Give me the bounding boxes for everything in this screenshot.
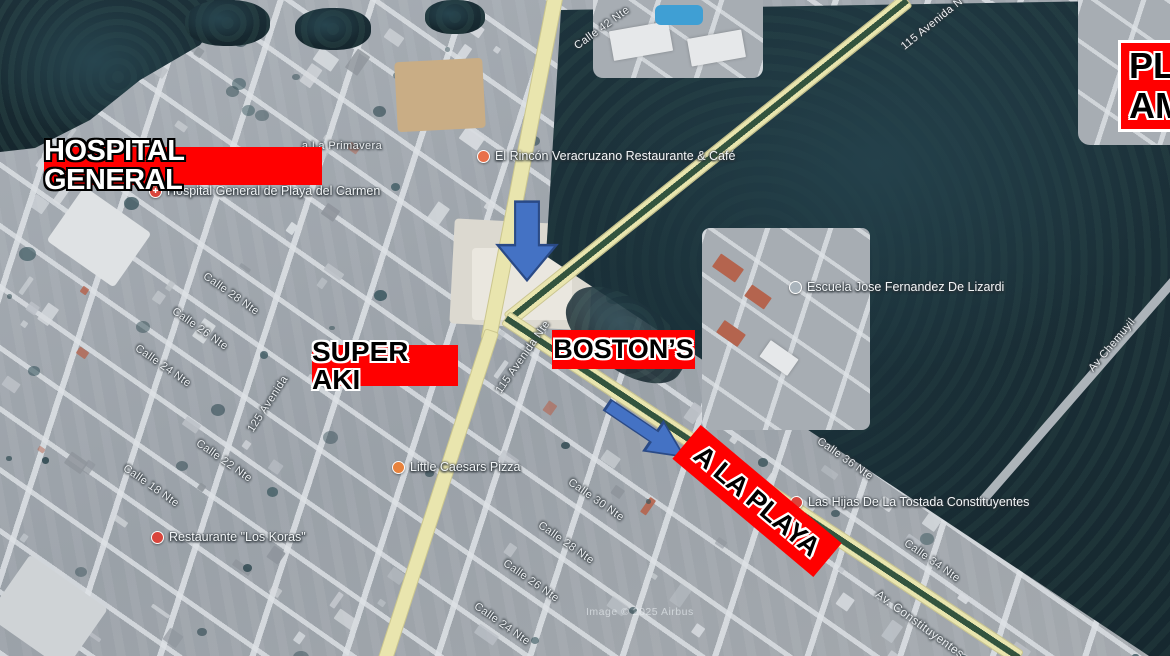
street-label: Calle 26 Nte xyxy=(170,305,230,352)
banner-plaza: PLA AM xyxy=(1118,40,1170,132)
street-label: Calle 24 Nte xyxy=(133,342,193,389)
banner-plaza-line1: PLA xyxy=(1129,48,1170,84)
street-label: 115 Avenida Nte xyxy=(494,318,553,395)
map-labels: 115 Avenida Nte115 Avenida NCalle 42 Nte… xyxy=(0,0,1170,656)
restaurant-icon xyxy=(477,150,490,163)
poi-label: El Rincón Veracruzano Restaurante & Café xyxy=(477,149,735,163)
street-label: Calle 22 Nte xyxy=(194,437,254,484)
street-label: 115 Avenida N xyxy=(899,0,965,52)
street-label: Calle 28 Nte xyxy=(201,270,261,317)
street-label: Calle 30 Nte xyxy=(566,476,626,523)
street-label: Calle 34 Nte xyxy=(902,537,962,584)
poi-text: El Rincón Veracruzano Restaurante & Café xyxy=(495,149,735,163)
poi-text: Restaurante "Los Koras" xyxy=(169,530,306,544)
poi-text: Las Hijas De La Tostada Constituyentes xyxy=(808,495,1029,509)
street-label: Av. Constituyentes xyxy=(873,587,967,656)
street-label: 125 Avenida xyxy=(245,374,290,435)
poi-label: Las Hijas De La Tostada Constituyentes xyxy=(790,495,1029,509)
banner-super-aki: SUPER AKI xyxy=(312,345,458,386)
street-label: Calle 42 Nte xyxy=(572,4,632,52)
restaurant-icon xyxy=(392,461,405,474)
street-label: Av Chemuyil xyxy=(1086,316,1138,374)
street-label: Calle 36 Nte xyxy=(815,435,875,482)
imagery-watermark: Image © 2025 Airbus xyxy=(586,606,694,618)
street-label: Calle 24 Nte xyxy=(472,600,532,647)
street-label: Calle 26 Nte xyxy=(501,557,561,604)
banner-hospital-general: HOSPITAL GENERAL xyxy=(44,147,322,185)
street-label: Calle 18 Nte xyxy=(121,462,181,509)
school-icon xyxy=(789,281,802,294)
banner-bostons: BOSTON’S xyxy=(552,330,695,369)
poi-text: Little Caesars Pizza xyxy=(410,460,520,474)
banner-plaza-line2: AM xyxy=(1129,88,1170,124)
down-arrow xyxy=(492,200,562,282)
satellite-map: 115 Avenida Nte115 Avenida NCalle 42 Nte… xyxy=(0,0,1170,656)
poi-label: Restaurante "Los Koras" xyxy=(151,530,306,544)
poi-label: Escuela Jose Fernandez De Lizardi xyxy=(789,280,1004,294)
poi-text: Escuela Jose Fernandez De Lizardi xyxy=(807,280,1004,294)
poi-label: Little Caesars Pizza xyxy=(392,460,520,474)
restaurant-icon xyxy=(151,531,164,544)
street-label: Calle 28 Nte xyxy=(536,519,596,566)
